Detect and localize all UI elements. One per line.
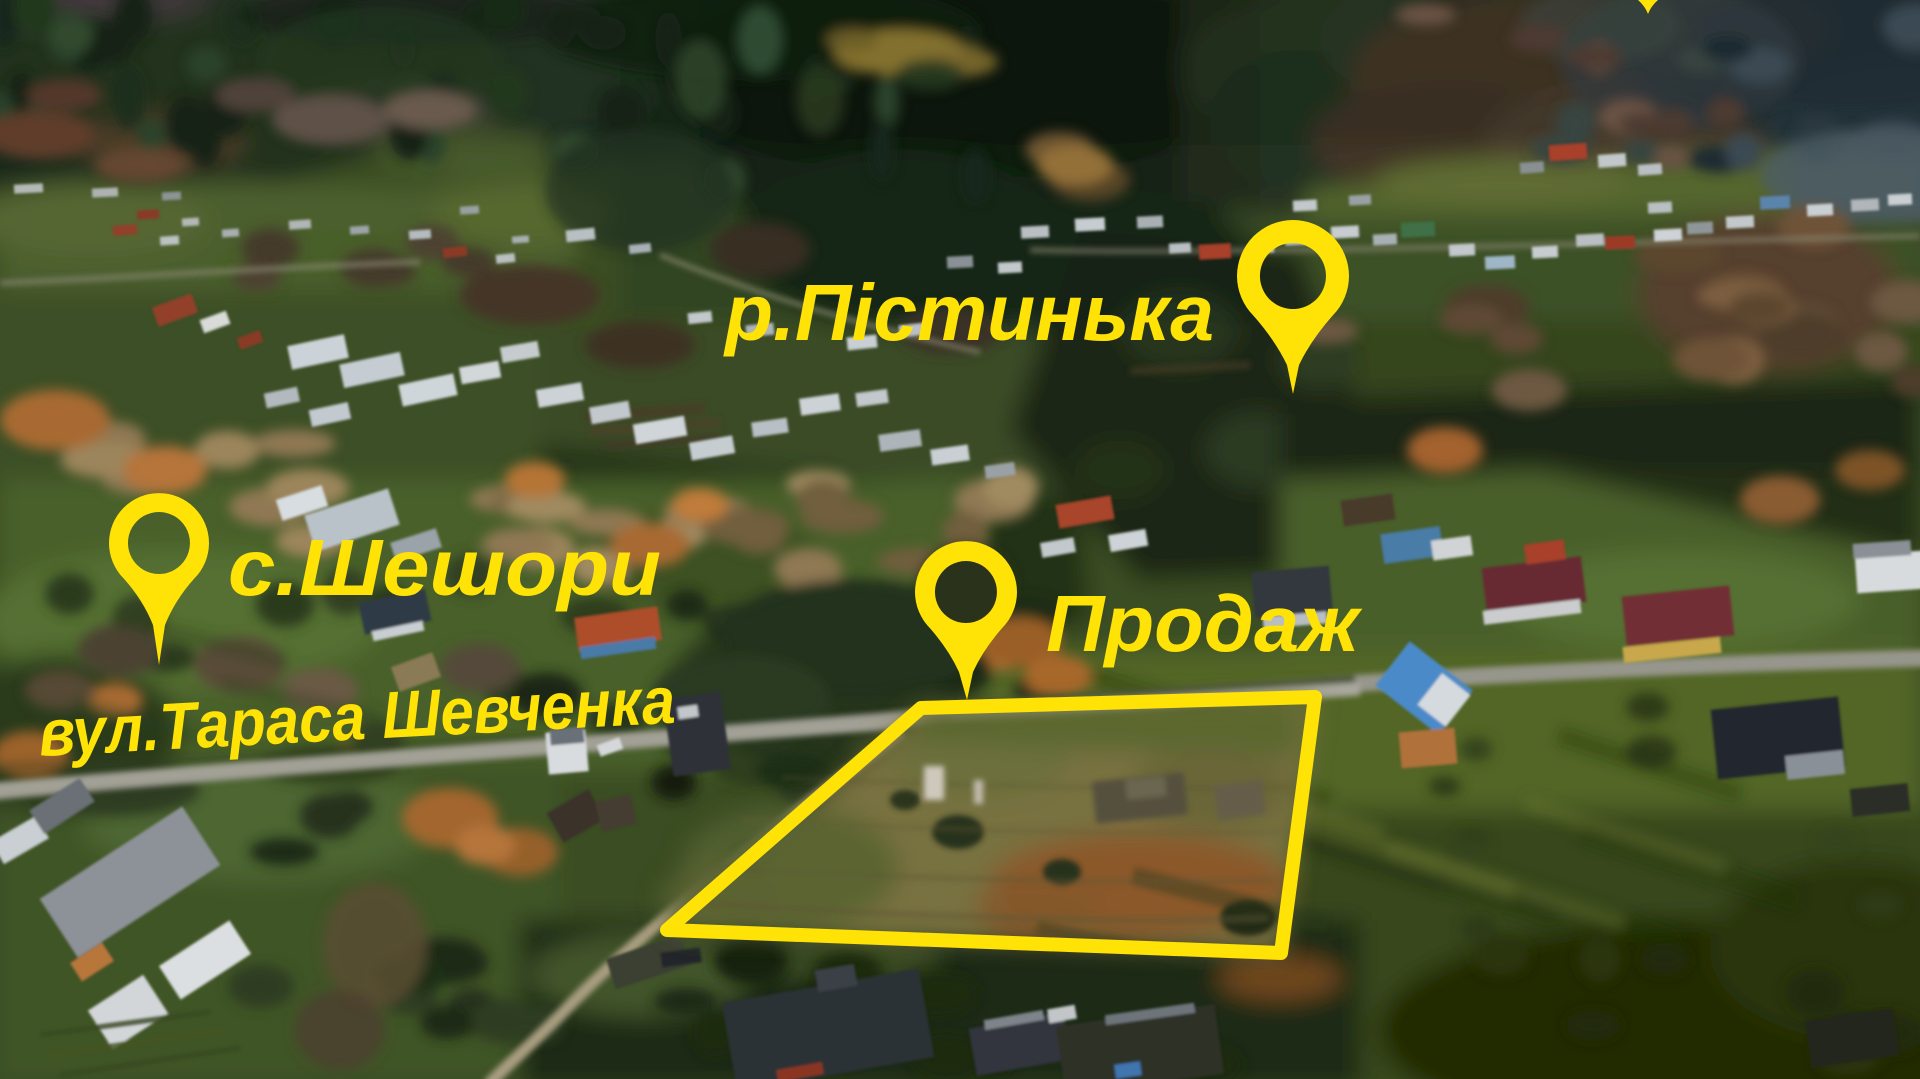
svg-text:р.Пістинька: р.Пістинька bbox=[723, 268, 1214, 357]
svg-text:с.Шешори: с.Шешори bbox=[228, 523, 661, 612]
svg-text:Продаж: Продаж bbox=[1046, 579, 1363, 668]
